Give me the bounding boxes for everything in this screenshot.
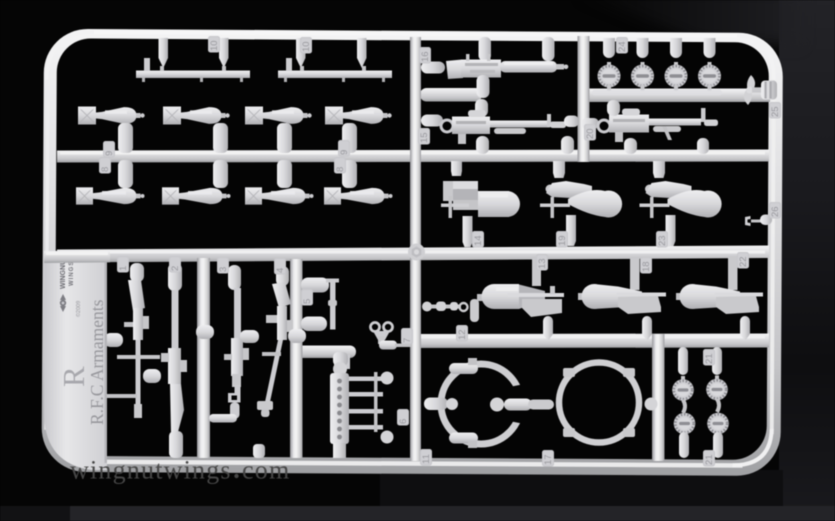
svg-text:26: 26 <box>770 206 781 217</box>
svg-text:14: 14 <box>473 235 484 246</box>
svg-text:24: 24 <box>617 41 628 52</box>
svg-text:4: 4 <box>275 268 286 273</box>
svg-text:9: 9 <box>104 151 115 156</box>
svg-text:20: 20 <box>585 128 596 139</box>
svg-text:3: 3 <box>218 267 229 272</box>
svg-text:WINGS: WINGS <box>69 261 75 286</box>
svg-text:©2009: ©2009 <box>75 301 82 317</box>
svg-text:22: 22 <box>738 256 749 267</box>
svg-text:1: 1 <box>118 266 129 271</box>
svg-text:13: 13 <box>537 258 548 269</box>
svg-text:R: R <box>56 366 91 387</box>
svg-text:11: 11 <box>421 454 432 464</box>
svg-text:9: 9 <box>339 150 350 155</box>
svg-text:23: 23 <box>657 235 668 246</box>
svg-text:19: 19 <box>557 235 568 246</box>
svg-text:com: com <box>242 456 290 485</box>
svg-text:21: 21 <box>704 454 715 465</box>
svg-text:25: 25 <box>770 106 781 117</box>
svg-text:8: 8 <box>335 167 346 172</box>
svg-text:15: 15 <box>419 132 430 143</box>
svg-text:8: 8 <box>100 167 111 172</box>
svg-text:21: 21 <box>704 353 715 364</box>
svg-text:18: 18 <box>641 261 652 272</box>
svg-text:16: 16 <box>420 51 431 62</box>
svg-text:5: 5 <box>302 299 313 304</box>
svg-text:wingnutwings: wingnutwings <box>70 456 232 485</box>
svg-text:2: 2 <box>170 266 181 271</box>
svg-text:10: 10 <box>301 41 312 52</box>
svg-text:6: 6 <box>398 419 409 424</box>
svg-text:17: 17 <box>543 454 554 465</box>
svg-text:10: 10 <box>209 40 220 51</box>
svg-text:7: 7 <box>402 338 413 343</box>
svg-text:12: 12 <box>457 329 468 340</box>
svg-text:R.F.C Armaments: R.F.C Armaments <box>87 299 107 425</box>
